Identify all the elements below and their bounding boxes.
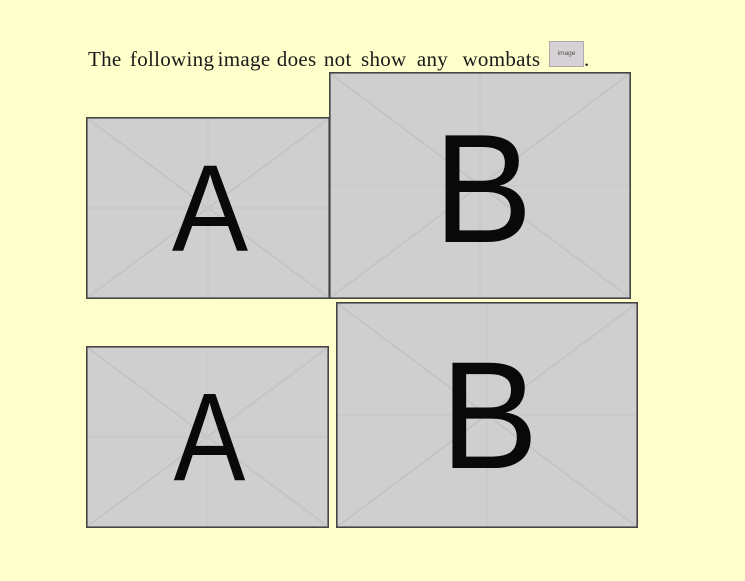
svg-text:A: A	[172, 140, 248, 278]
svg-text:A: A	[174, 366, 246, 506]
svg-text:B: B	[433, 102, 532, 275]
svg-text:B: B	[440, 329, 538, 500]
